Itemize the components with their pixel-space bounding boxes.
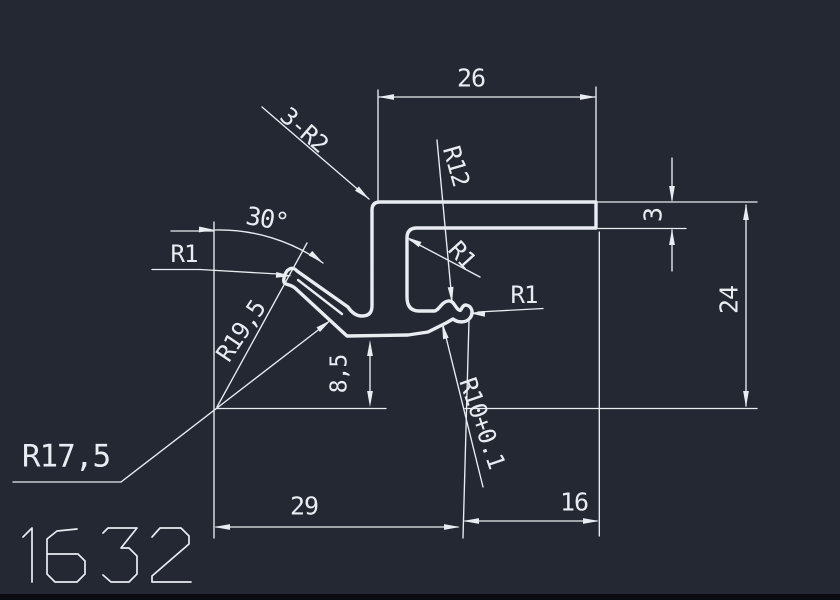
arrowhead [463, 518, 479, 524]
arrowhead [367, 391, 373, 407]
leader-r1-hook-label: R1 [171, 242, 198, 266]
dimension-lines [13, 87, 757, 538]
arrowhead [199, 227, 215, 233]
dim-30deg-label: 30° [244, 203, 290, 235]
arrowhead [583, 518, 599, 524]
leader-r17-5-label: R17,5 [22, 442, 110, 473]
bottom-edge [0, 594, 840, 600]
drawing-number-glyph-6 [47, 529, 85, 582]
drawing-number-glyph-2 [152, 528, 191, 582]
drawing-canvas[interactable]: 263-R2R1230°R1R1R1R19,58,5R17,5R10+0.132… [0, 0, 840, 600]
arrowhead [580, 94, 596, 100]
dim-3-label: 3 [641, 208, 666, 222]
dim-16-label: 16 [560, 490, 588, 515]
dim-8-5-label: 8,5 [329, 355, 352, 394]
arrowhead [378, 94, 394, 100]
arrowhead [444, 524, 460, 530]
profile-outline [284, 202, 596, 336]
drawing-number-glyph-1 [23, 528, 32, 582]
dim-29-label: 29 [290, 494, 318, 519]
arrowhead [669, 229, 675, 245]
arrowhead [214, 524, 230, 530]
arrowhead [367, 340, 373, 356]
drawing-number-text [23, 528, 191, 582]
dimension-arrowheads [199, 94, 749, 530]
arrowhead [743, 391, 749, 407]
drawing-number-glyph-3 [103, 528, 137, 582]
arrowhead [669, 186, 675, 202]
arrowhead [743, 204, 749, 220]
dim-24-label: 24 [717, 286, 742, 314]
dim-26-label: 26 [457, 66, 485, 91]
leader-r1-bead-label: R1 [511, 283, 538, 307]
